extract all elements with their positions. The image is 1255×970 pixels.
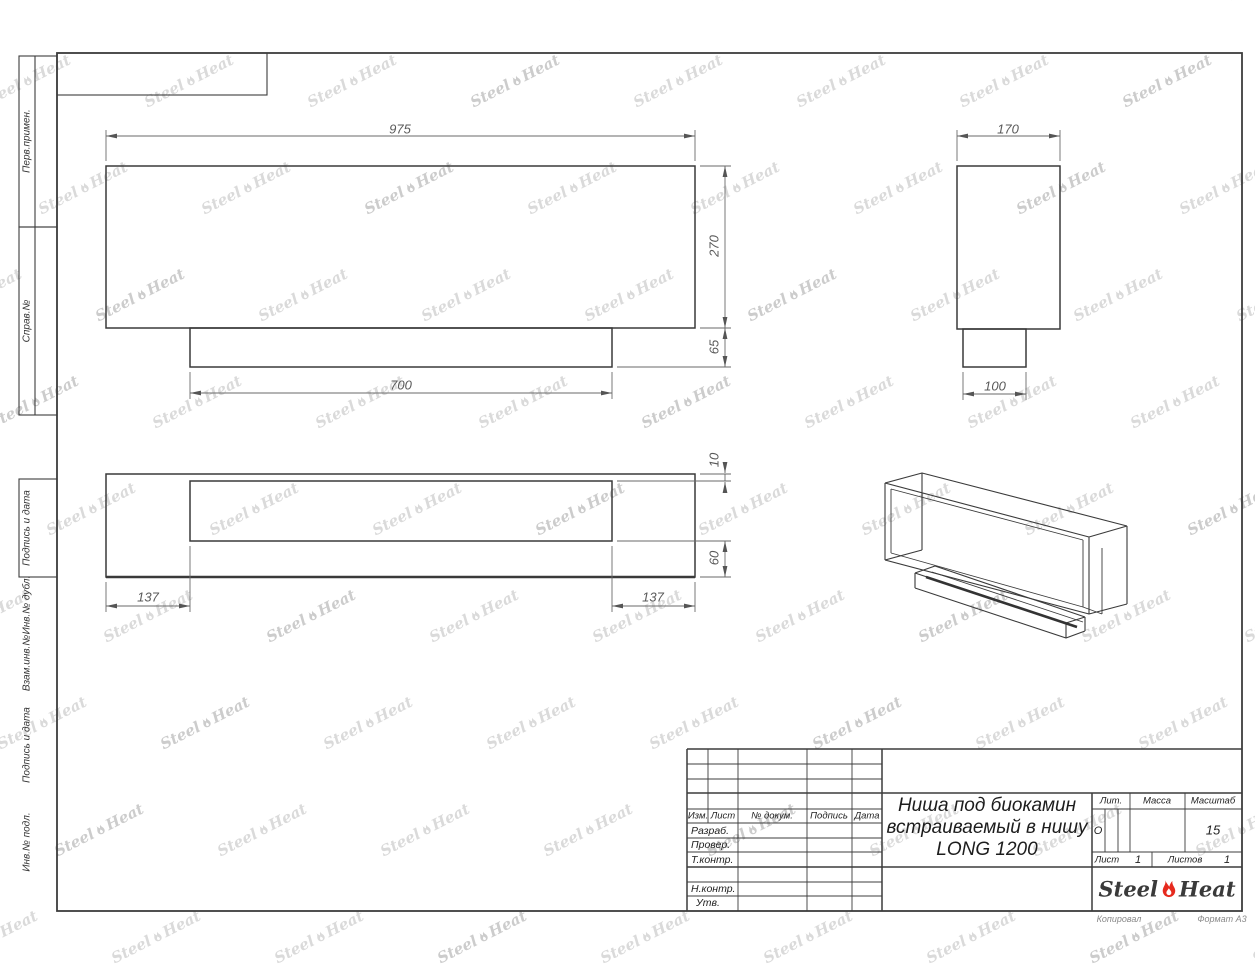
row-prover: Провер. xyxy=(691,839,730,851)
scale-header: Масштаб xyxy=(1191,796,1235,807)
col-header-sign: Подпись xyxy=(810,811,848,822)
row-tkontr: Т.контр. xyxy=(691,854,733,866)
row-razrab: Разраб. xyxy=(691,825,729,837)
logo-text-steel: Steel xyxy=(1098,877,1158,902)
margin-label-inv-podl: Инв.№ подл. xyxy=(22,812,33,871)
company-logo: Steel Heat xyxy=(1098,877,1235,902)
dim-plan-back-depth: 60 xyxy=(707,551,722,565)
margin-label-perv-primen: Перв.примен. xyxy=(22,109,33,173)
footer-format: Формат А3 xyxy=(1197,914,1246,924)
sheet-label: Лист xyxy=(1095,855,1119,866)
footer-kopiroval: Копировал xyxy=(1097,914,1142,924)
logo-text-heat: Heat xyxy=(1179,877,1236,902)
dim-front-width: 975 xyxy=(389,122,411,137)
dim-front-height: 270 xyxy=(707,235,722,257)
sheets-value: 1 xyxy=(1224,854,1230,866)
col-header-izm: Изм. xyxy=(688,811,708,822)
dim-side-width: 170 xyxy=(997,122,1019,137)
margin-label-sprav-no: Справ.№ xyxy=(22,300,33,343)
row-nkontr: Н.контр. xyxy=(691,883,735,895)
doc-title-line-3: LONG 1200 xyxy=(936,839,1037,861)
sheet-value: 1 xyxy=(1135,854,1141,866)
scale-value: 15 xyxy=(1206,823,1220,838)
doc-title-line-2: встраиваемый в нишу xyxy=(886,817,1087,839)
drawing-sheet: SteelHeatSteelHeatSteelHeatSteelHeatStee… xyxy=(0,0,1255,970)
lit-header: Лит. xyxy=(1100,796,1122,807)
margin-label-podpis-data-2: Подпись и дата xyxy=(22,707,33,783)
dim-plan-offset-right: 137 xyxy=(642,590,664,605)
dim-plan-offset-left: 137 xyxy=(137,590,159,605)
dim-side-base-width: 100 xyxy=(984,379,1006,394)
lit-value: О xyxy=(1094,825,1103,837)
margin-label-podpis-data-1: Подпись и дата xyxy=(22,490,33,566)
row-utv: Утв. xyxy=(696,897,720,909)
doc-title-line-1: Ниша под биокамин xyxy=(898,795,1076,817)
mass-header: Масса xyxy=(1143,796,1171,807)
sheets-label: Листов xyxy=(1168,855,1203,866)
col-header-date: Дата xyxy=(854,811,879,822)
dim-front-base-height: 65 xyxy=(707,340,722,354)
text-layer: Перв.примен. Справ.№ Подпись и дата Инв.… xyxy=(0,0,1255,970)
col-header-doc: № докум. xyxy=(751,811,793,822)
dim-front-base-width: 700 xyxy=(390,378,412,393)
dim-plan-inset: 10 xyxy=(707,453,722,467)
col-header-list: Лист xyxy=(711,811,735,822)
margin-label-inv-dubl: Инв.№ дубл. xyxy=(22,576,33,635)
flame-icon xyxy=(1159,878,1178,901)
margin-label-vzam-inv: Взам.инв.№ xyxy=(22,635,33,691)
